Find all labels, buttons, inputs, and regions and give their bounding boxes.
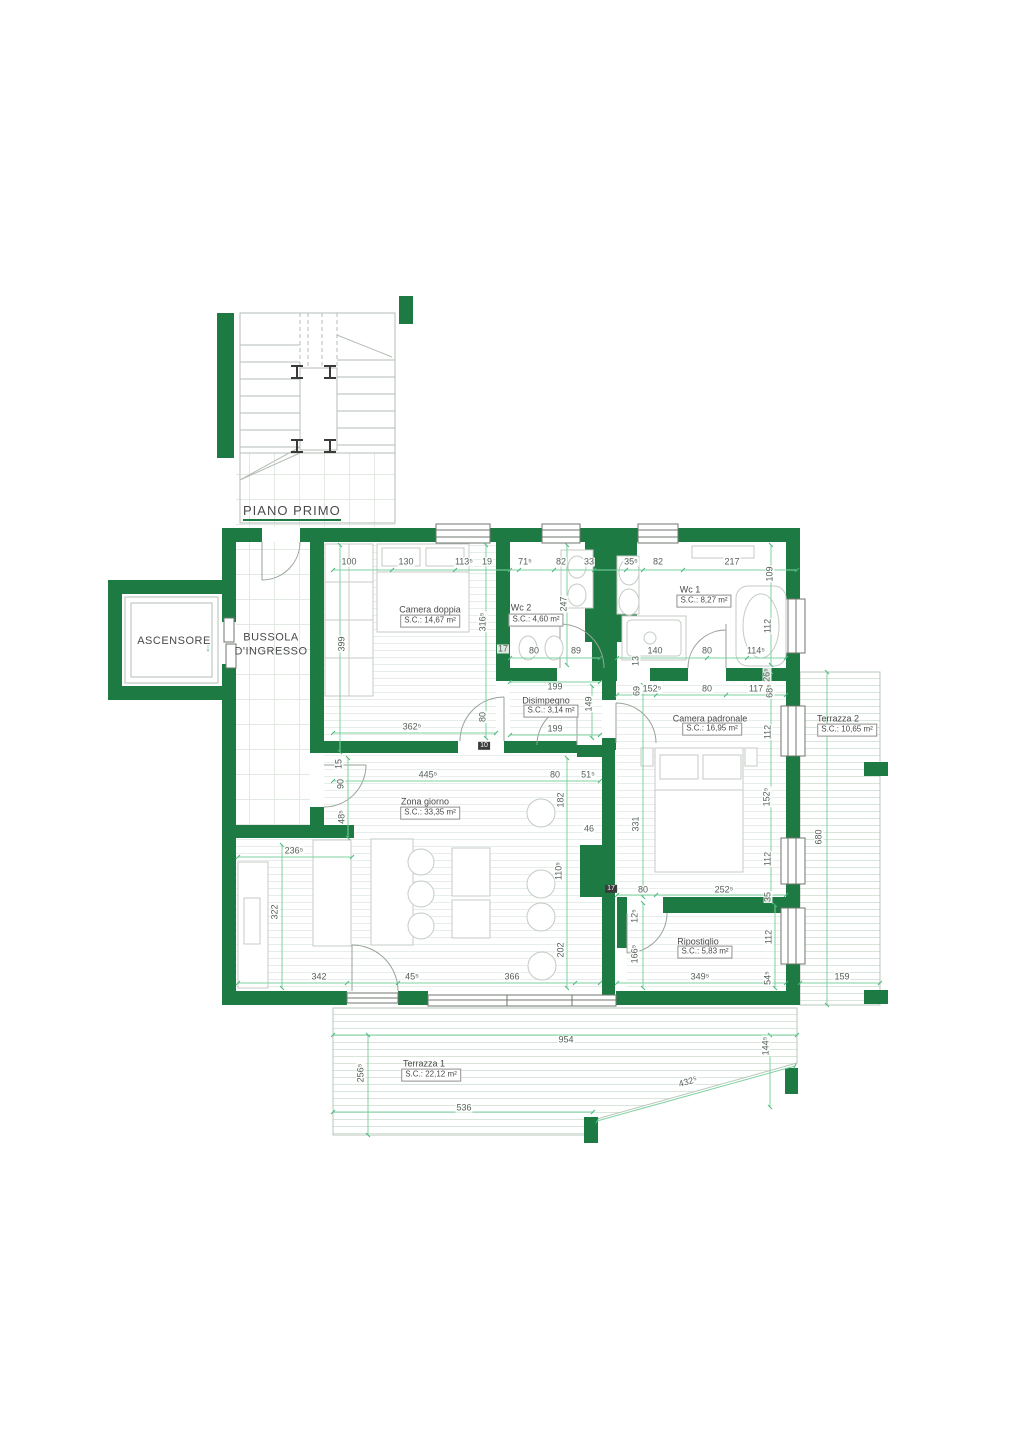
window-right-padronale-2 [781,838,805,884]
floor-plan-canvas: PIANO PRIMO ASCENSORE ↓ BUSSOLA D'INGRES… [0,0,1018,1440]
wc1-fixtures [617,546,786,666]
door-wc1 [688,624,726,668]
window-top-2 [542,524,580,543]
double-bed-padronale [641,748,757,872]
elevator-car [125,597,218,683]
window-top-3 [638,524,678,543]
dining-table [371,839,413,945]
window-right-ripostiglio [781,908,805,964]
window-right-padronale-1 [781,706,805,756]
elevator-door [224,618,236,668]
kitchen-counter [238,862,268,988]
window-bottom [428,995,616,1006]
dining-chairs [408,849,434,939]
door-threshold-bottom [347,993,398,1003]
double-bed-camera-doppia [377,544,469,632]
wardrobe [325,544,373,696]
sofa [452,848,490,938]
wc2-fixtures [519,550,593,660]
window-top-1 [436,524,490,543]
kitchen-island [313,840,351,946]
floor-plan-drawing [0,0,1018,1440]
